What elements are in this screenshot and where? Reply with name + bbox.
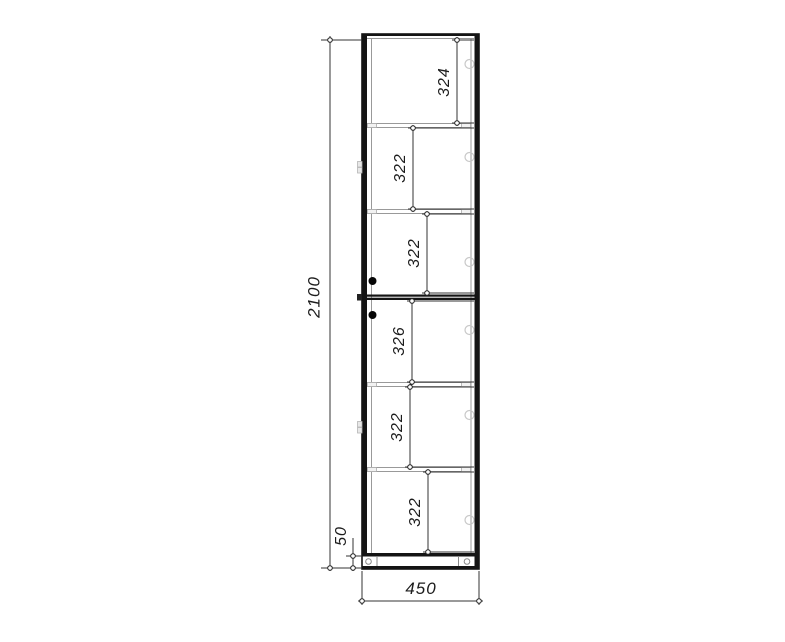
dimension-endpoint xyxy=(410,380,415,385)
shelf-end-cap xyxy=(462,468,471,472)
right-side-panel xyxy=(475,34,480,569)
hinge-tab xyxy=(358,422,363,428)
upper-door-bottom-edge xyxy=(362,295,479,297)
dimension-endpoint xyxy=(411,207,416,212)
dimension-endpoint xyxy=(410,299,415,304)
dimension-endpoint xyxy=(426,470,431,475)
hinge-tab xyxy=(358,428,363,434)
shelf-end-cap xyxy=(368,468,377,472)
dimension-overall-height xyxy=(321,36,362,571)
divider-left-nub xyxy=(357,294,362,301)
dimension-endpoint xyxy=(351,566,356,571)
shelf-end-cap xyxy=(462,383,471,387)
dimension-endpoint xyxy=(455,38,460,43)
shelf-end-cap xyxy=(368,210,377,214)
dimension-endpoint xyxy=(328,38,333,43)
dimension-endpoint xyxy=(425,291,430,296)
compartment-5-label: 322 xyxy=(389,412,406,442)
dimension-endpoint xyxy=(425,212,430,217)
shelf-end-cap xyxy=(368,383,377,387)
overall-width-label: 450 xyxy=(405,579,436,598)
upper-door-handle xyxy=(369,277,377,285)
dimension-endpoint xyxy=(408,465,413,470)
dimension-endpoint xyxy=(411,126,416,131)
overall-height-label: 2100 xyxy=(304,276,323,319)
dimension-endpoint xyxy=(455,121,460,126)
shelf-end-cap xyxy=(462,124,471,128)
shelf-end-cap xyxy=(462,210,471,214)
hinge-tab xyxy=(358,162,363,168)
base-height-label: 50 xyxy=(333,526,350,546)
cabinet-drawing: 2100 324 322 322 326 322 xyxy=(0,0,785,642)
dimension-endpoint xyxy=(351,554,356,559)
bottom-outer-edge xyxy=(362,566,479,569)
hinge-tab xyxy=(358,168,363,174)
dimension-endpoint xyxy=(477,599,482,604)
lower-door-top-edge xyxy=(362,298,479,300)
compartment-6-label: 322 xyxy=(407,497,424,527)
dimension-endpoint xyxy=(426,550,431,555)
compartment-3-label: 322 xyxy=(406,238,423,268)
compartment-4-label: 326 xyxy=(391,326,408,356)
dimension-endpoint xyxy=(328,566,333,571)
compartment-1-label: 324 xyxy=(436,67,453,97)
technical-drawing-canvas: 2100 324 322 322 326 322 xyxy=(0,0,785,642)
lower-door-handle xyxy=(369,311,377,319)
dimension-endpoint xyxy=(408,385,413,390)
shelf-end-cap xyxy=(368,124,377,128)
top-panel-edge xyxy=(362,34,479,36)
dimension-endpoint xyxy=(360,599,365,604)
compartment-2-label: 322 xyxy=(392,153,409,183)
bottom-panel-edge xyxy=(362,553,479,557)
